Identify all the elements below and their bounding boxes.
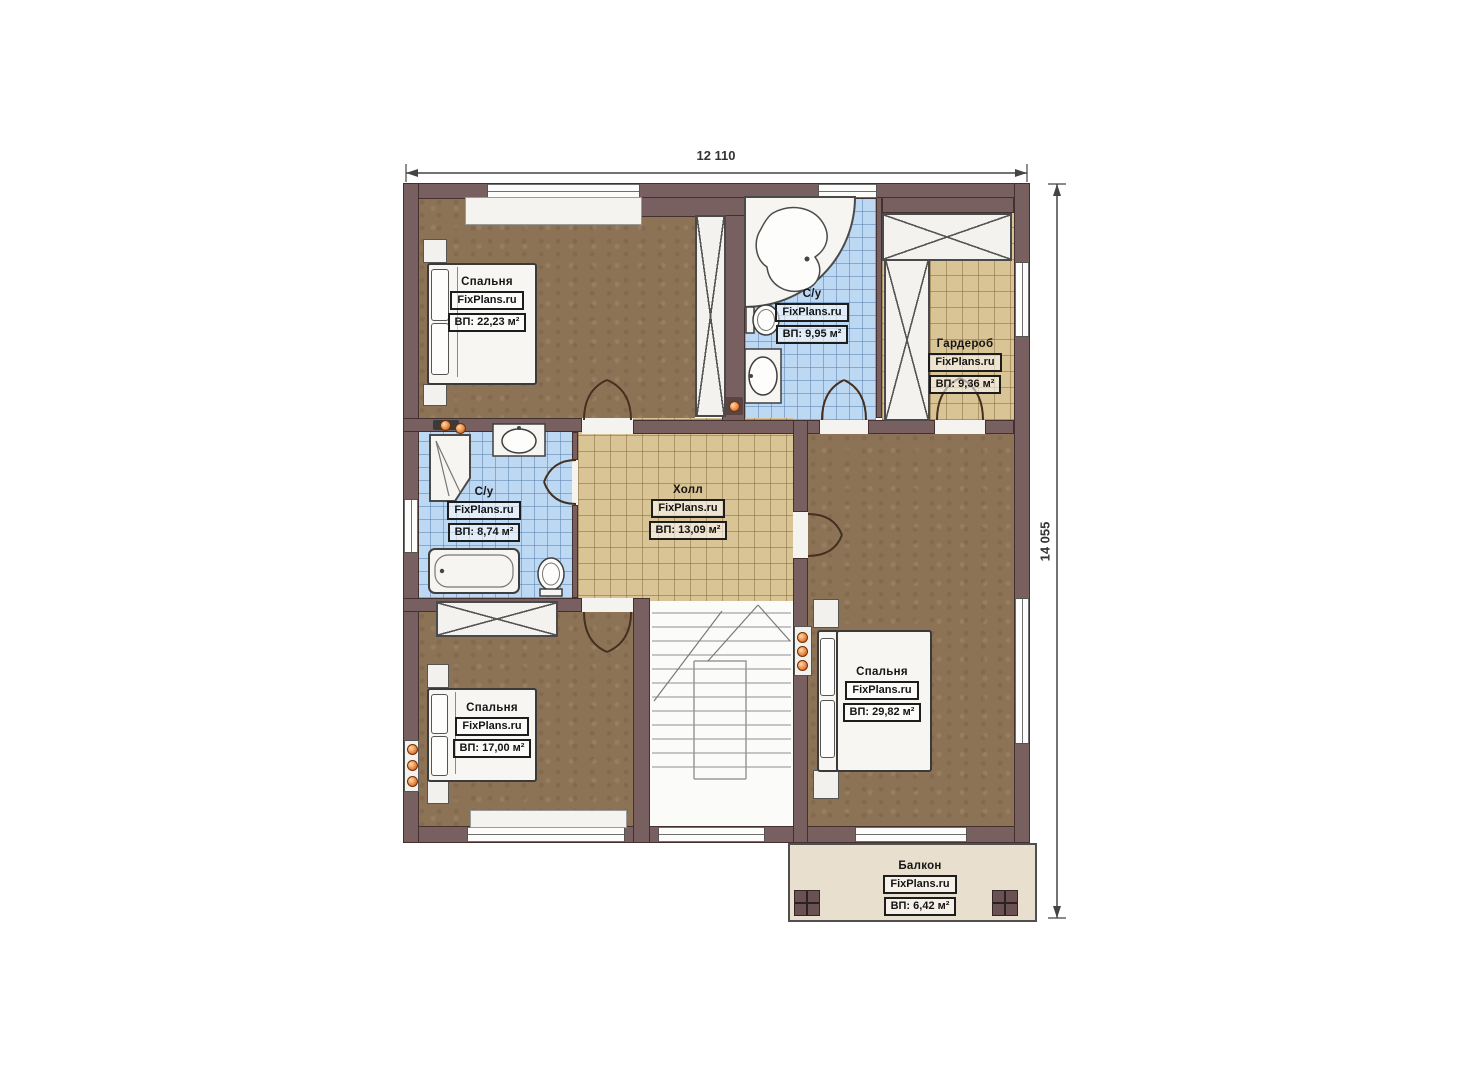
window-right-wardrobe	[1015, 262, 1029, 337]
watermark: FixPlans.ru	[845, 681, 918, 700]
wall-stair-west	[633, 598, 650, 843]
spot-light-icon	[455, 423, 466, 434]
door-arc-bathroom-top	[820, 378, 868, 420]
balcony-post	[794, 890, 820, 916]
watermark: FixPlans.ru	[928, 353, 1001, 372]
room-label-balcony: Балкон FixPlans.ru ВП: 6,42 м²	[870, 860, 970, 916]
room-name: С/у	[803, 288, 822, 300]
wall-hall-west-lower	[572, 505, 578, 598]
nightstand	[813, 770, 839, 799]
nightstand	[423, 384, 447, 406]
room-name: Спальня	[466, 702, 518, 714]
spot-light-icon	[797, 660, 808, 671]
window-recess-bottom-bedroom	[470, 810, 627, 828]
wall-mid-right-b	[985, 420, 1014, 434]
window-bottom-stairwell	[658, 827, 765, 842]
closet-wardrobe-top	[882, 213, 1012, 261]
sink-icon-left	[492, 423, 546, 457]
spot-light-icon	[729, 401, 740, 412]
room-name: Холл	[673, 484, 703, 496]
dimension-width-label: 12 110	[660, 148, 772, 163]
wall-top-infill	[638, 197, 745, 217]
spot-light-icon	[407, 776, 418, 787]
window-recess-top-bedroom	[465, 197, 642, 225]
room-name: Гардероб	[937, 338, 994, 350]
room-label-bathroom-top: С/у FixPlans.ru ВП: 9,95 м²	[762, 288, 862, 344]
room-label-wardrobe: Гардероб FixPlans.ru ВП: 9,36 м²	[915, 338, 1015, 394]
wall-bedroom-right-west-upper	[793, 420, 808, 512]
room-label-bathroom-left: С/у FixPlans.ru ВП: 8,74 м²	[434, 486, 534, 542]
room-name: Балкон	[898, 860, 941, 872]
window-right-bedroom	[1015, 598, 1029, 744]
watermark: FixPlans.ru	[883, 875, 956, 894]
floor-plan-canvas: Спальня FixPlans.ru ВП: 22,23 м² С/у Fix…	[0, 0, 1473, 1080]
room-label-bedroom-top-left: Спальня FixPlans.ru ВП: 22,23 м²	[437, 276, 537, 332]
window-bottom-bedroom	[467, 827, 625, 842]
room-area: ВП: 13,09 м²	[649, 521, 728, 540]
wall-bedroom-right-west-lower	[793, 558, 808, 843]
nightstand	[813, 599, 839, 628]
wall-mid-right-a	[868, 420, 935, 434]
watermark: FixPlans.ru	[775, 303, 848, 322]
threshold-bedroom-bottom-left	[582, 598, 633, 612]
room-label-hall: Холл FixPlans.ru ВП: 13,09 м²	[638, 484, 738, 540]
room-area: ВП: 9,95 м²	[776, 325, 849, 344]
dimension-line-top	[400, 164, 1033, 182]
spot-light-icon	[407, 760, 418, 771]
closet-dashed-line	[438, 635, 552, 637]
threshold-bedroom-right	[793, 512, 808, 558]
closet-bedroom-bottom-left	[436, 601, 558, 637]
threshold-bathroom-top	[820, 420, 868, 434]
threshold-bedroom-top-left	[582, 418, 633, 434]
watermark: FixPlans.ru	[447, 501, 520, 520]
watermark: FixPlans.ru	[455, 717, 528, 736]
threshold-wardrobe	[935, 420, 985, 434]
watermark: FixPlans.ru	[450, 291, 523, 310]
sink-icon-top	[744, 348, 782, 404]
balcony-door	[855, 827, 967, 842]
room-name: С/у	[475, 486, 494, 498]
balcony-post	[992, 890, 1018, 916]
spot-light-icon	[407, 744, 418, 755]
door-arc-bedroom-right	[808, 512, 844, 558]
spot-light-icon	[440, 420, 451, 431]
nightstand	[427, 780, 449, 804]
room-name: Спальня	[461, 276, 513, 288]
nightstand	[423, 239, 447, 263]
staircase	[650, 601, 793, 828]
wall-mid-center	[633, 420, 820, 434]
closet-bedroom-top-left	[695, 215, 726, 417]
bathtub-icon	[428, 548, 520, 594]
room-area: ВП: 6,42 м²	[884, 897, 957, 916]
room-label-bedroom-right: Спальня FixPlans.ru ВП: 29,82 м²	[832, 666, 932, 722]
room-area: ВП: 29,82 м²	[843, 703, 922, 722]
window-top-bedroom	[487, 184, 640, 198]
wall-wardrobe-top	[882, 197, 1014, 213]
window-left-bathroom	[404, 499, 418, 553]
door-arc-bathroom-left	[542, 458, 576, 506]
window-top-bathroom	[818, 184, 877, 198]
room-label-bedroom-bottom-left: Спальня FixPlans.ru ВП: 17,00 м²	[442, 702, 542, 758]
spot-light-icon	[797, 646, 808, 657]
dimension-height-label: 14 055	[1038, 502, 1053, 582]
spot-light-icon	[797, 632, 808, 643]
room-area: ВП: 17,00 м²	[453, 739, 532, 758]
door-arc-bedroom-top-left	[582, 378, 633, 420]
door-arc-bedroom-bottom-left	[582, 612, 633, 654]
wall-hall-west-upper	[572, 432, 578, 460]
watermark: FixPlans.ru	[651, 499, 724, 518]
nightstand	[427, 664, 449, 688]
room-area: ВП: 22,23 м²	[448, 313, 527, 332]
room-area: ВП: 8,74 м²	[448, 523, 521, 542]
room-name: Спальня	[856, 666, 908, 678]
room-area: ВП: 9,36 м²	[929, 375, 1002, 394]
toilet-icon-left	[536, 556, 566, 598]
